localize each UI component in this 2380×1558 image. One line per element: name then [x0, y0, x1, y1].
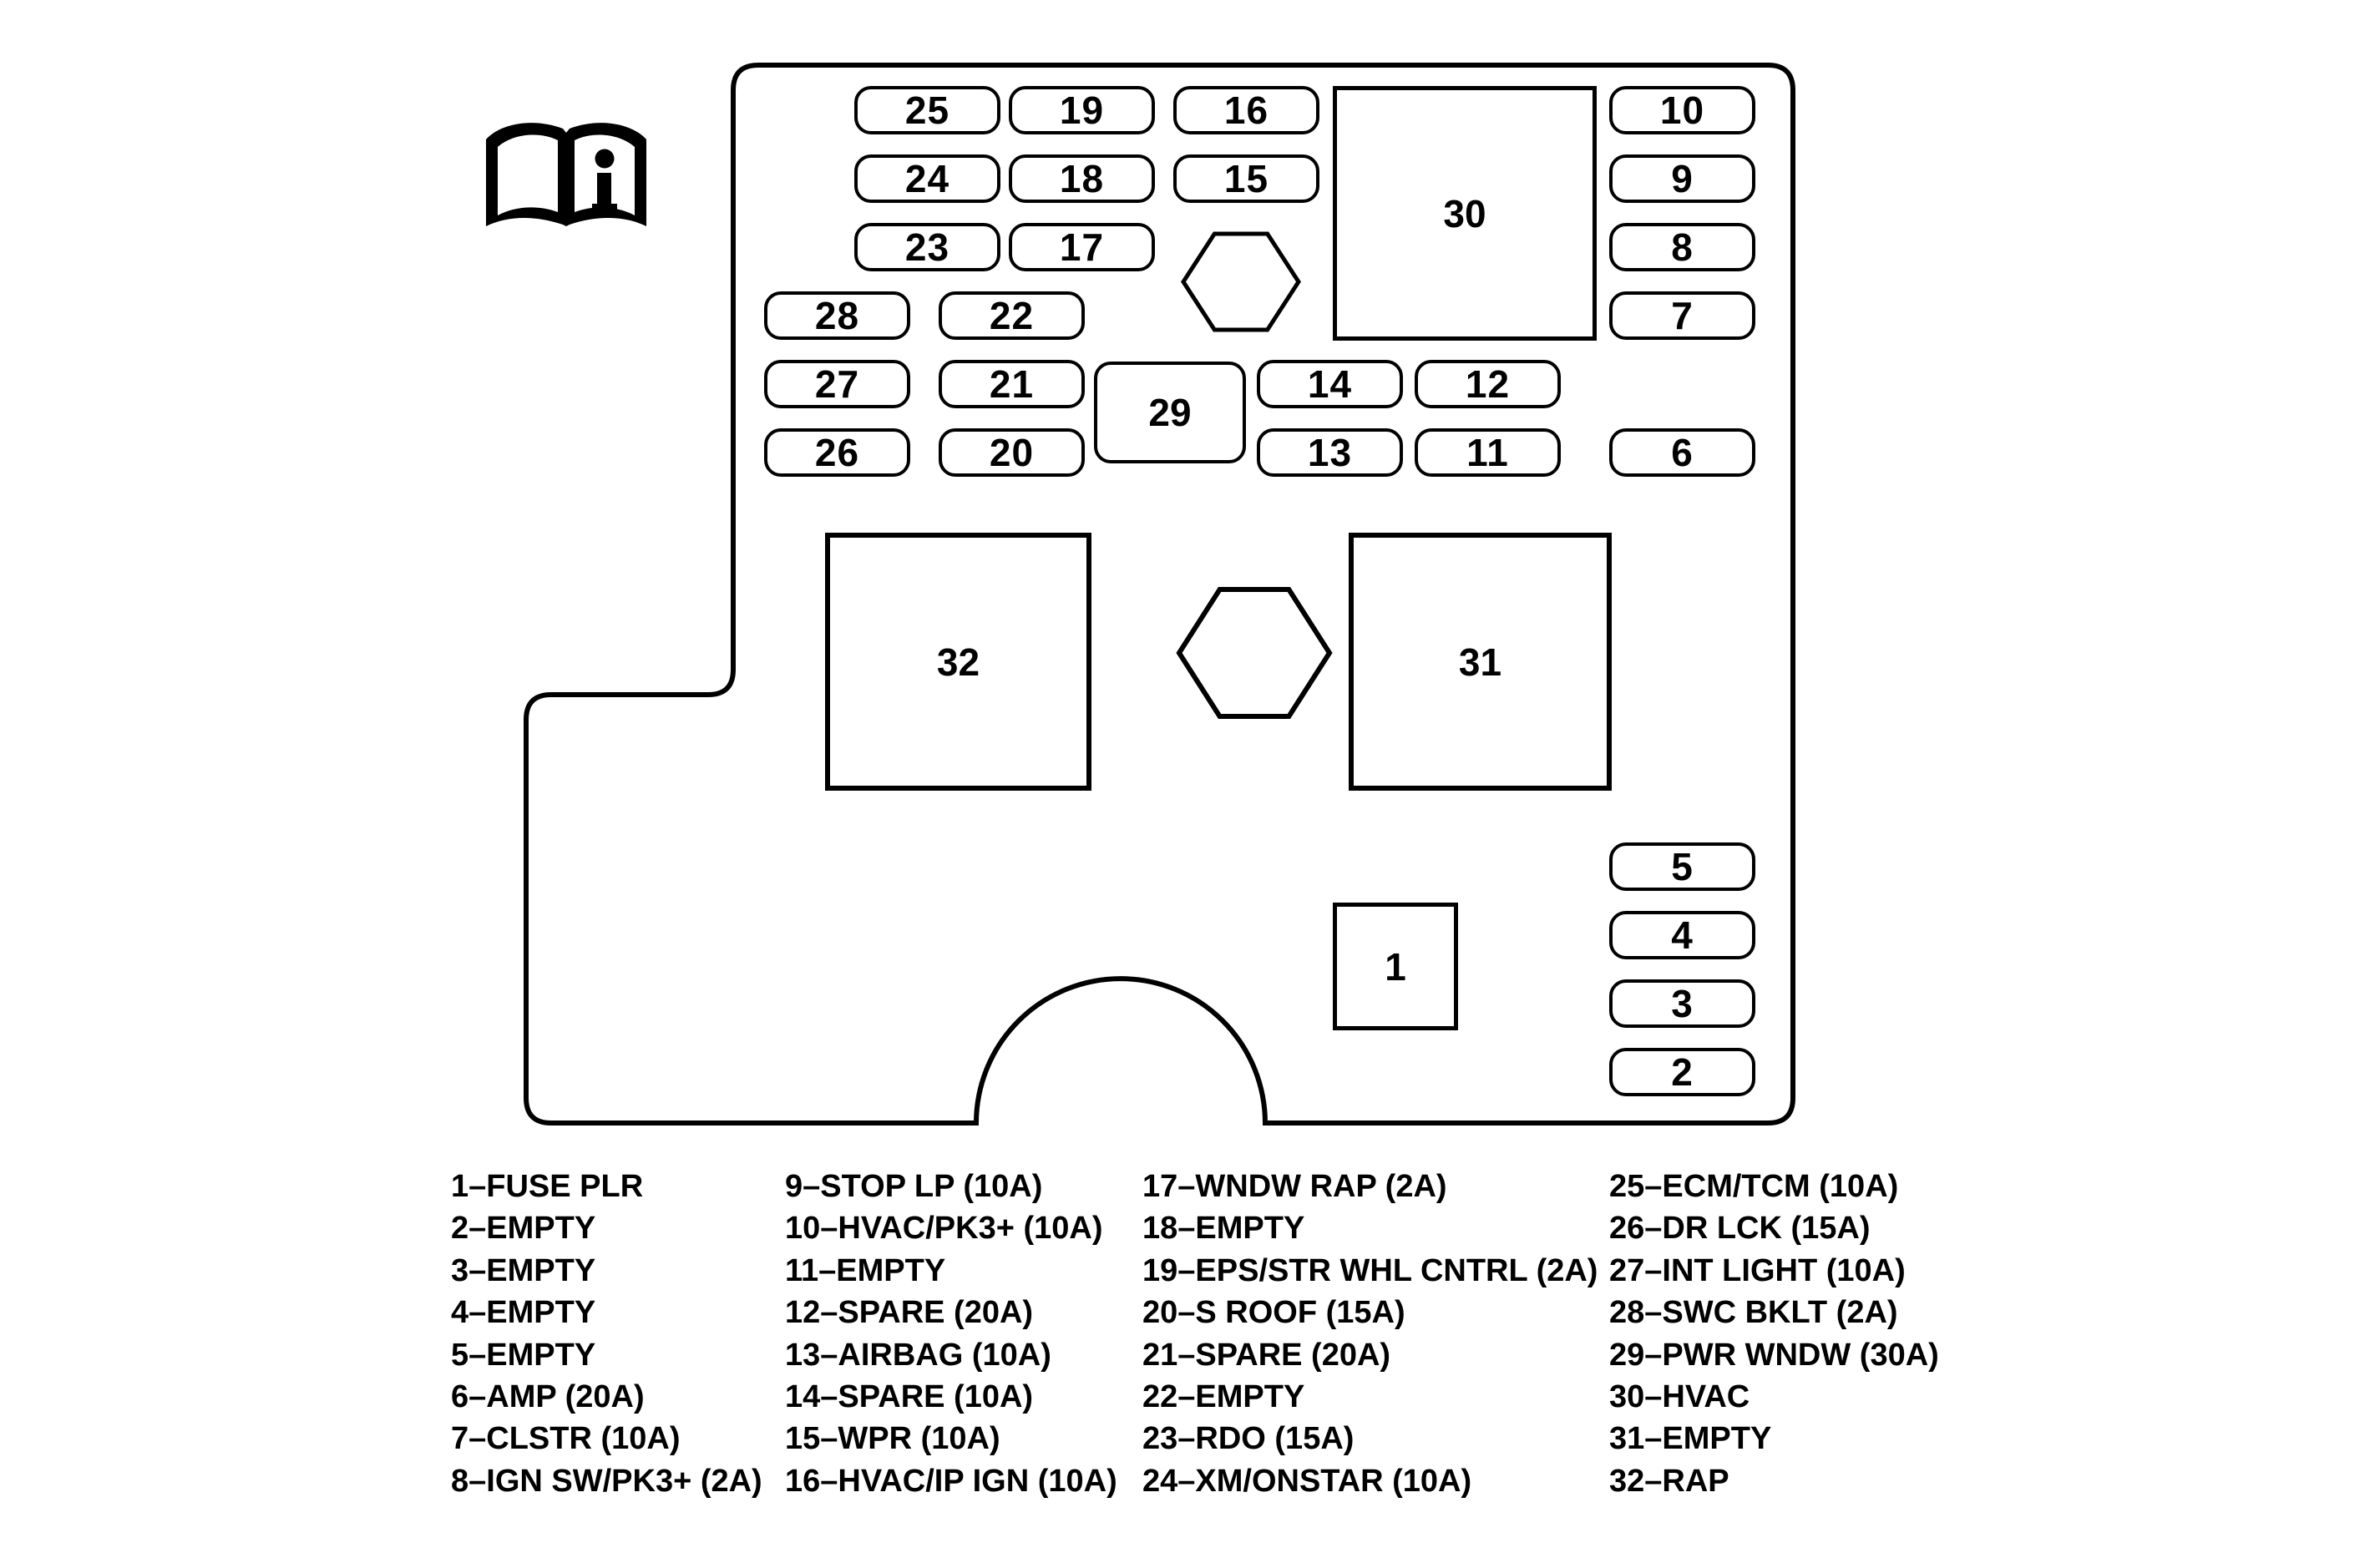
- legend-entry: 12–SPARE (20A): [785, 1292, 1117, 1333]
- legend-entry: 21–SPARE (20A): [1142, 1334, 1598, 1376]
- legend-entry: 27–INT LIGHT (10A): [1609, 1250, 1939, 1292]
- open-book-info-icon: [486, 123, 646, 226]
- relay-box-30: 30: [1333, 86, 1597, 341]
- fuse-pill-4: 4: [1609, 911, 1755, 959]
- fuse-pill-9: 9: [1609, 154, 1755, 203]
- legend-entry: 9–STOP LP (10A): [785, 1166, 1117, 1207]
- fuse-pill-14: 14: [1257, 360, 1403, 408]
- legend-entry: 2–EMPTY: [451, 1207, 762, 1249]
- legend-entry: 4–EMPTY: [451, 1292, 762, 1333]
- legend-entry: 5–EMPTY: [451, 1334, 762, 1376]
- legend-entry: 32–RAP: [1609, 1460, 1939, 1502]
- fuse-pill-13: 13: [1257, 428, 1403, 477]
- legend-entry: 25–ECM/TCM (10A): [1609, 1166, 1939, 1207]
- fuse-pill-18: 18: [1009, 154, 1155, 203]
- legend-entry: 17–WNDW RAP (2A): [1142, 1166, 1598, 1207]
- fuse-pill-27: 27: [764, 360, 910, 408]
- fuse-pill-15: 15: [1173, 154, 1319, 203]
- fuse-pill-3: 3: [1609, 979, 1755, 1028]
- legend-entry: 31–EMPTY: [1609, 1418, 1939, 1459]
- legend-entry: 15–WPR (10A): [785, 1418, 1117, 1459]
- hex-bolt-icon-upper: [1183, 234, 1299, 330]
- legend-entry: 19–EPS/STR WHL CNTRL (2A): [1142, 1250, 1598, 1292]
- fuse-pill-21: 21: [939, 360, 1085, 408]
- legend-entry: 13–AIRBAG (10A): [785, 1334, 1117, 1376]
- relay-box-31: 31: [1349, 533, 1612, 791]
- legend-entry: 10–HVAC/PK3+ (10A): [785, 1207, 1117, 1249]
- legend-entry: 30–HVAC: [1609, 1376, 1939, 1418]
- fuse-pill-25: 25: [854, 86, 1000, 134]
- fuse-pill-22: 22: [939, 291, 1085, 340]
- legend-entry: 23–RDO (15A): [1142, 1418, 1598, 1459]
- fuse-pill-7: 7: [1609, 291, 1755, 340]
- fuse-pill-24: 24: [854, 154, 1000, 203]
- legend-entry: 6–AMP (20A): [451, 1376, 762, 1418]
- legend-entry: 16–HVAC/IP IGN (10A): [785, 1460, 1117, 1502]
- fuse-pill-23: 23: [854, 223, 1000, 271]
- fuse-box-diagram: 2519161024181592317828227272114122620131…: [0, 0, 2380, 1558]
- relay-box-29: 29: [1094, 362, 1246, 463]
- legend-entry: 11–EMPTY: [785, 1250, 1117, 1292]
- fuse-pill-17: 17: [1009, 223, 1155, 271]
- legend-entry: 26–DR LCK (15A): [1609, 1207, 1939, 1249]
- fuse-pill-26: 26: [764, 428, 910, 477]
- legend-column-3: 17–WNDW RAP (2A)18–EMPTY19–EPS/STR WHL C…: [1142, 1166, 1598, 1502]
- legend-entry: 20–S ROOF (15A): [1142, 1292, 1598, 1333]
- fuse-pill-28: 28: [764, 291, 910, 340]
- legend-column-2: 9–STOP LP (10A)10–HVAC/PK3+ (10A)11–EMPT…: [785, 1166, 1117, 1502]
- relay-box-1: 1: [1333, 903, 1458, 1030]
- legend-entry: 3–EMPTY: [451, 1250, 762, 1292]
- legend-entry: 14–SPARE (10A): [785, 1376, 1117, 1418]
- fuse-pill-2: 2: [1609, 1048, 1755, 1096]
- relay-box-32: 32: [825, 533, 1091, 791]
- fuse-pill-19: 19: [1009, 86, 1155, 134]
- fuse-pill-8: 8: [1609, 223, 1755, 271]
- fuse-pill-6: 6: [1609, 428, 1755, 477]
- legend-entry: 8–IGN SW/PK3+ (2A): [451, 1460, 762, 1502]
- fuse-pill-11: 11: [1415, 428, 1561, 477]
- legend-entry: 22–EMPTY: [1142, 1376, 1598, 1418]
- hex-bolt-icon-lower: [1179, 589, 1329, 716]
- legend-entry: 28–SWC BKLT (2A): [1609, 1292, 1939, 1333]
- fuse-pill-5: 5: [1609, 842, 1755, 891]
- fuse-pill-16: 16: [1173, 86, 1319, 134]
- legend-column-4: 25–ECM/TCM (10A)26–DR LCK (15A)27–INT LI…: [1609, 1166, 1939, 1502]
- fuse-pill-12: 12: [1415, 360, 1561, 408]
- legend-entry: 24–XM/ONSTAR (10A): [1142, 1460, 1598, 1502]
- legend-entry: 7–CLSTR (10A): [451, 1418, 762, 1459]
- fuse-pill-10: 10: [1609, 86, 1755, 134]
- legend-column-1: 1–FUSE PLR2–EMPTY3–EMPTY4–EMPTY5–EMPTY6–…: [451, 1166, 762, 1502]
- legend-entry: 1–FUSE PLR: [451, 1166, 762, 1207]
- legend-entry: 29–PWR WNDW (30A): [1609, 1334, 1939, 1376]
- legend-entry: 18–EMPTY: [1142, 1207, 1598, 1249]
- fuse-pill-20: 20: [939, 428, 1085, 477]
